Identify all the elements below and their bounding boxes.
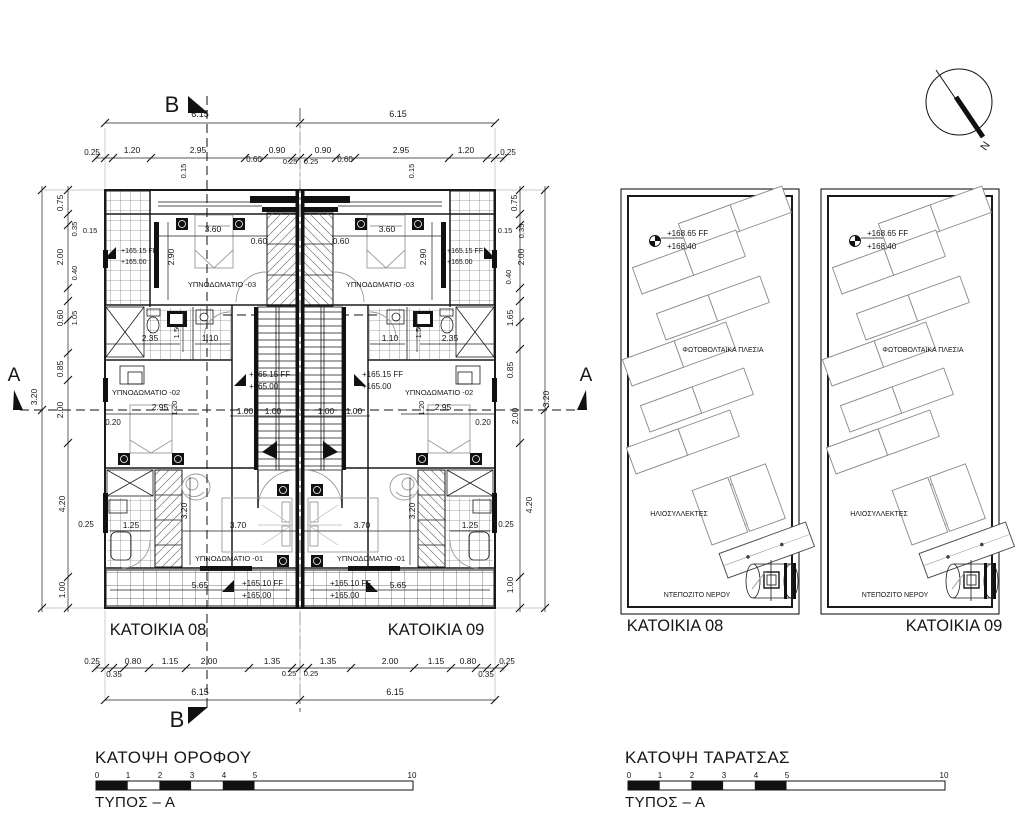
dim-label: 6.15 xyxy=(386,687,404,697)
scale-bar-right xyxy=(628,781,945,790)
drawing-sheet: ΚΑΤΟΨΗ ΟΡΟΦΟΥ ΚΑΤΟΨΗ ΤΑΡΑΤΣΑΣ ΤΥΠΟΣ – Α … xyxy=(0,0,1025,839)
dim-label: 2.35 xyxy=(142,333,159,343)
dim-label: 0.25 xyxy=(304,157,319,166)
dim-label: 2.00 xyxy=(55,401,65,418)
dim-label: 1.25 xyxy=(123,520,140,530)
dim-label: 0.35 xyxy=(517,224,526,239)
dim-label: 1.20 xyxy=(170,401,179,416)
dim-label: 1.50 xyxy=(414,324,423,339)
dim-label: 3.20 xyxy=(29,388,39,405)
dim-label: ΥΠΝΟΔΩΜΑΤΙΟ -03 xyxy=(188,280,256,289)
dim-label: 0.85 xyxy=(505,361,515,378)
dim-label: +168.65 FF xyxy=(667,229,708,238)
dim-label: 0.15 xyxy=(498,226,513,235)
dim-label: 1.20 xyxy=(417,401,426,416)
section-mark-b-bottom: B xyxy=(170,707,185,732)
section-flag-a-right xyxy=(577,390,587,410)
pv-label: ΦΩΤΟΒΟΛΤΑΪΚΑ ΠΛΕΣΙΑ xyxy=(682,346,763,354)
dim-label: ΥΠΝΟΔΩΜΑΤΙΟ -01 xyxy=(195,554,263,563)
scale-number: 5 xyxy=(785,771,790,780)
dim-label: 0.90 xyxy=(269,145,286,155)
dim-label: 1.00 xyxy=(265,406,282,416)
dim-label: ΥΠΝΟΔΩΜΑΤΙΟ -01 xyxy=(337,554,405,563)
dim-label: +165.15 FF xyxy=(121,248,157,255)
dim-label: +165.15 FF xyxy=(362,370,403,379)
dim-label: 1.15 xyxy=(162,656,179,666)
floor-plan-title: ΚΑΤΟΨΗ ΟΡΟΦΟΥ xyxy=(95,748,251,767)
dim-label: +168.65 FF xyxy=(867,229,908,238)
scale-number: 4 xyxy=(222,771,227,780)
dim-label: +165.15 FF xyxy=(447,248,483,255)
dim-label: 3.70 xyxy=(230,520,247,530)
dim-label: 1.50 xyxy=(172,324,181,339)
pv-label: ΦΩΤΟΒΟΛΤΑΪΚΑ ΠΛΕΣΙΑ xyxy=(882,346,963,354)
dim-label: 0.25 xyxy=(499,657,515,666)
dim-label: 0.90 xyxy=(315,145,332,155)
dim-label: 0.25 xyxy=(84,657,100,666)
floor-plan-type: ΤΥΠΟΣ – Α xyxy=(95,794,175,811)
dim-label: 1.00 xyxy=(237,406,254,416)
dim-label: 6.15 xyxy=(389,109,407,119)
dim-label: 0.25 xyxy=(282,669,297,678)
dim-label: 2.95 xyxy=(152,402,169,412)
dim-label: 1.25 xyxy=(462,520,479,530)
dim-label: ΥΠΝΟΔΩΜΑΤΙΟ -02 xyxy=(112,388,180,397)
scale-number: 1 xyxy=(126,771,131,780)
dim-label: 0.25 xyxy=(498,520,514,529)
dim-label: 0.80 xyxy=(460,656,477,666)
scale-number: 0 xyxy=(95,771,100,780)
scale-number: 1 xyxy=(658,771,663,780)
unit-title: ΚΑΤΟΙΚΙΑ 09 xyxy=(906,617,1003,635)
dim-label: 1.15 xyxy=(428,656,445,666)
dim-label: 2.90 xyxy=(166,248,176,265)
dim-label: 1.35 xyxy=(320,656,337,666)
dim-label: 0.60 xyxy=(251,236,268,246)
scale-number: 4 xyxy=(754,771,759,780)
dim-label: 2.95 xyxy=(435,402,452,412)
dim-label: 1.05 xyxy=(70,311,79,326)
scale-number: 3 xyxy=(722,771,727,780)
dim-label: 1.00 xyxy=(346,406,363,416)
dim-label: 0.35 xyxy=(70,222,79,237)
dim-label: 6.15 xyxy=(191,687,209,697)
tank-label: ΝΤΕΠΟΖΙΤΟ ΝΕΡΟΥ xyxy=(862,592,929,599)
roof-plan-title: ΚΑΤΟΨΗ ΤΑΡΑΤΣΑΣ xyxy=(625,748,790,767)
dim-label: ΥΠΝΟΔΩΜΑΤΙΟ -02 xyxy=(405,388,473,397)
collector-label: ΗΛΙΟΣΥΛΛΕΚΤΕΣ xyxy=(850,511,908,518)
dim-label: 0.25 xyxy=(500,148,516,157)
dim-label: 4.20 xyxy=(57,495,67,512)
dim-label: 1.00 xyxy=(318,406,335,416)
dim-label: +165.10 FF xyxy=(330,579,371,588)
dim-label: 0.35 xyxy=(478,670,494,679)
dim-label: 0.15 xyxy=(83,226,98,235)
dim-label: 2.00 xyxy=(55,248,65,265)
dim-label: 0.60 xyxy=(337,155,353,164)
dim-label: 4.20 xyxy=(524,496,534,513)
dim-label: 0.75 xyxy=(509,194,519,211)
tank-label: ΝΤΕΠΟΖΙΤΟ ΝΕΡΟΥ xyxy=(664,592,731,599)
section-flag-b-bottom xyxy=(188,707,208,724)
dim-label: 0.60 xyxy=(333,236,350,246)
dim-label: 2.00 xyxy=(382,656,399,666)
collector-label: ΗΛΙΟΣΥΛΛΕΚΤΕΣ xyxy=(650,511,708,518)
dim-label: ΥΠΝΟΔΩΜΑΤΙΟ -03 xyxy=(346,280,414,289)
dim-label: 5.65 xyxy=(390,580,407,590)
scale-number: 10 xyxy=(940,771,949,780)
dim-label: +165.00 xyxy=(249,382,279,391)
dim-label: 3.60 xyxy=(205,224,222,234)
roof-unit-09 xyxy=(821,186,1014,614)
party-wall xyxy=(296,190,300,608)
section-flag-a-left xyxy=(13,390,23,410)
dim-label: 1.10 xyxy=(382,333,399,343)
dim-label: 2.90 xyxy=(418,248,428,265)
dim-label: 2.00 xyxy=(510,407,520,424)
scale-bar-left xyxy=(96,781,413,790)
north-letter: N xyxy=(978,140,992,153)
dim-label: 0.25 xyxy=(78,520,94,529)
dim-label: +165.00 xyxy=(330,591,360,600)
dim-label: 0.35 xyxy=(106,670,122,679)
dim-label: 0.25 xyxy=(84,148,100,157)
scale-number: 2 xyxy=(158,771,163,780)
dim-label: +165.00 xyxy=(242,591,272,600)
dim-label: 3.20 xyxy=(407,502,417,519)
dim-label: 0.80 xyxy=(125,656,142,666)
unit-title: ΚΑΤΟΙΚΙΑ 09 xyxy=(388,621,485,639)
scale-number: 0 xyxy=(627,771,632,780)
floor-plan xyxy=(13,96,587,724)
unit-title: ΚΑΤΟΙΚΙΑ 08 xyxy=(627,617,724,635)
dim-label: 3.20 xyxy=(179,502,189,519)
dim-label: 0.25 xyxy=(304,669,319,678)
dim-label: 1.35 xyxy=(264,656,281,666)
dim-label: 2.00 xyxy=(201,656,218,666)
dim-label: 2.95 xyxy=(393,145,410,155)
scale-number: 3 xyxy=(190,771,195,780)
party-wall xyxy=(301,190,305,608)
dim-label: 0.85 xyxy=(55,360,65,377)
dim-label: +165.00 xyxy=(362,382,392,391)
dim-label: 0.15 xyxy=(179,164,188,179)
north-arrow xyxy=(926,69,992,137)
dim-label: 1.10 xyxy=(202,333,219,343)
scale-number: 2 xyxy=(690,771,695,780)
dim-label: +168,40 xyxy=(667,242,697,251)
dim-label: 1.65 xyxy=(505,309,515,326)
dim-label: 0.60 xyxy=(246,155,262,164)
section-mark-a-left: A xyxy=(8,365,21,386)
scale-number: 5 xyxy=(253,771,258,780)
dim-label: +165.00 xyxy=(447,259,473,266)
dim-label: 0.20 xyxy=(475,418,491,427)
dim-label: 2.95 xyxy=(190,145,207,155)
dim-label: 1.00 xyxy=(505,576,515,593)
dim-label: +165.00 xyxy=(121,259,147,266)
architectural-drawing: ΚΑΤΟΨΗ ΟΡΟΦΟΥ ΚΑΤΟΨΗ ΤΑΡΑΤΣΑΣ ΤΥΠΟΣ – Α … xyxy=(0,0,1025,839)
section-mark-b-top: B xyxy=(165,92,180,117)
dim-label: 0.60 xyxy=(55,309,65,326)
roof-plan-type: ΤΥΠΟΣ – Α xyxy=(625,794,705,811)
dim-label: +168,40 xyxy=(867,242,897,251)
dim-label: 0.40 xyxy=(70,266,79,281)
dim-label: 3.60 xyxy=(379,224,396,234)
dim-label: 3.70 xyxy=(354,520,371,530)
north-needle xyxy=(956,97,983,137)
dim-label: 0.15 xyxy=(407,164,416,179)
dim-label: 1.20 xyxy=(458,145,475,155)
scale-number: 10 xyxy=(408,771,417,780)
dim-label: 2.00 xyxy=(516,248,526,265)
dim-label: 2.35 xyxy=(442,333,459,343)
dim-label: 5.65 xyxy=(192,580,209,590)
dim-label: 1.00 xyxy=(57,581,67,598)
dim-label: 6.15 xyxy=(191,109,209,119)
dim-label: 0.75 xyxy=(55,194,65,211)
dim-label: +165.15 FF xyxy=(249,370,290,379)
dim-label: 3.20 xyxy=(541,390,551,407)
roof-unit-08 xyxy=(621,186,814,614)
dim-label: 0.20 xyxy=(105,418,121,427)
section-mark-a-right: A xyxy=(580,365,593,386)
dim-label: 1.20 xyxy=(124,145,141,155)
unit-title: ΚΑΤΟΙΚΙΑ 08 xyxy=(110,621,207,639)
dim-label: +165.10 FF xyxy=(242,579,283,588)
dim-label: 0.25 xyxy=(283,157,298,166)
dim-label: 0.40 xyxy=(504,270,513,285)
